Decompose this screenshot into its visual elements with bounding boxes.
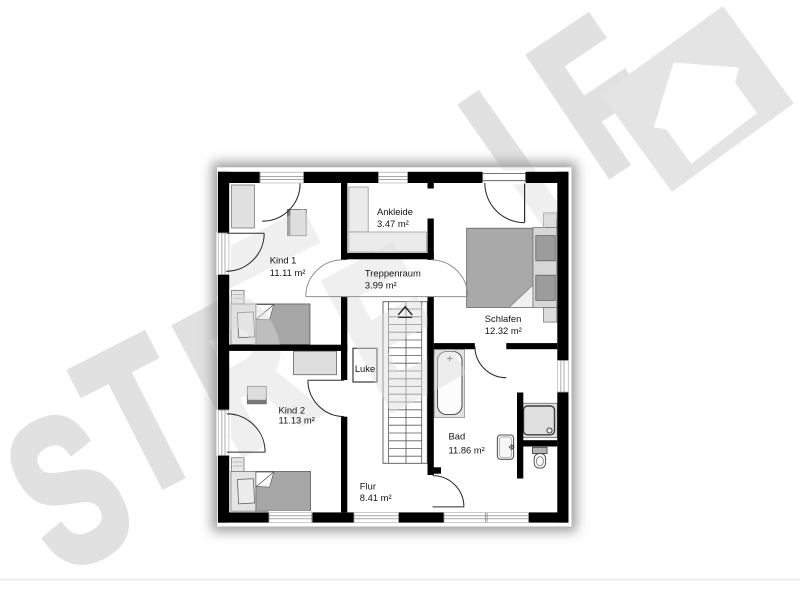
- svg-text:Luke: Luke: [355, 363, 375, 374]
- svg-text:3.99 m²: 3.99 m²: [365, 280, 397, 291]
- svg-text:Kind 1: Kind 1: [270, 254, 297, 265]
- svg-text:Schlafen: Schlafen: [485, 313, 521, 324]
- svg-text:11.86 m²: 11.86 m²: [449, 445, 485, 456]
- svg-text:12.32 m²: 12.32 m²: [485, 325, 522, 336]
- svg-text:Flur: Flur: [360, 481, 376, 492]
- svg-text:Ankleide: Ankleide: [377, 206, 413, 217]
- svg-text:11.13 m²: 11.13 m²: [279, 415, 315, 426]
- svg-text:Bad: Bad: [449, 431, 466, 442]
- svg-text:8.41 m²: 8.41 m²: [360, 492, 392, 503]
- svg-text:11.11 m²: 11.11 m²: [270, 267, 306, 278]
- svg-text:Treppenraum: Treppenraum: [365, 267, 421, 278]
- svg-text:3.47 m²: 3.47 m²: [377, 218, 409, 229]
